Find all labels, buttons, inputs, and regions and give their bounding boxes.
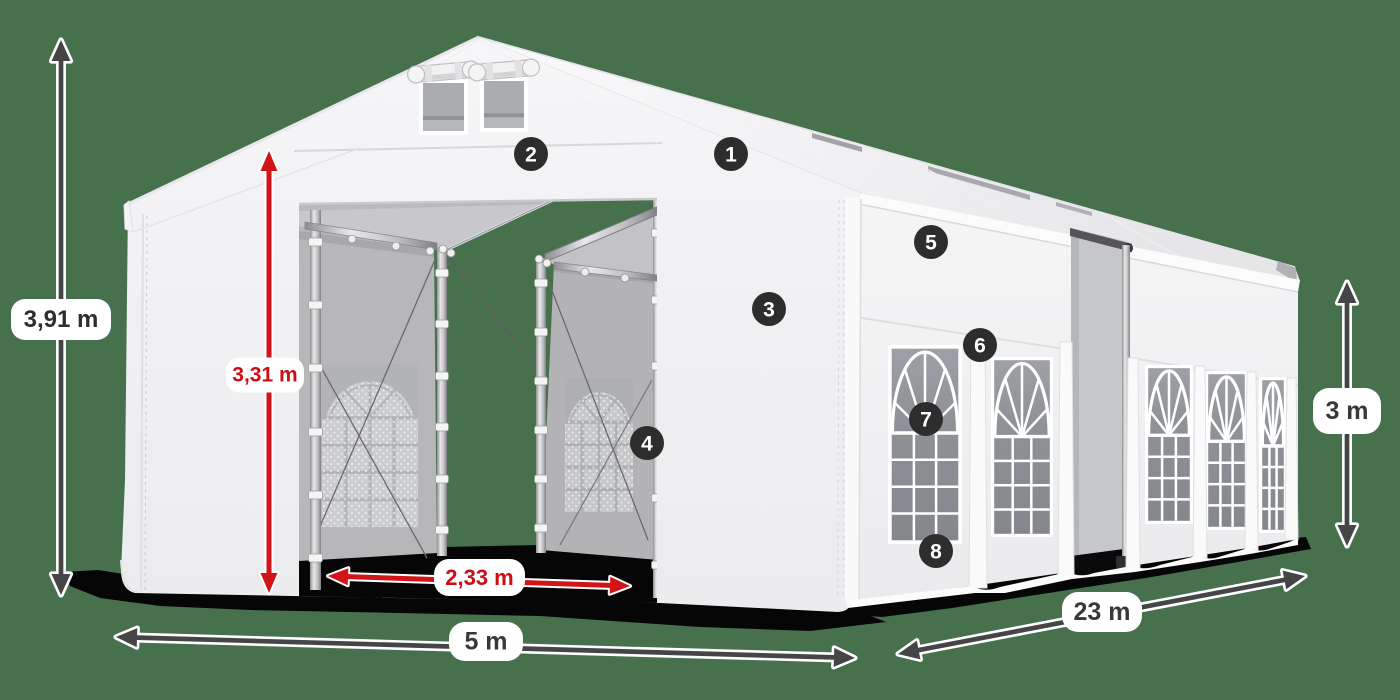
svg-text:3 m: 3 m [1325,397,1368,425]
svg-text:5: 5 [925,232,937,255]
svg-text:5 m: 5 m [464,628,507,656]
svg-text:3,91 m: 3,91 m [24,306,99,333]
svg-text:3,31 m: 3,31 m [232,364,297,387]
svg-text:8: 8 [930,541,942,564]
svg-text:23 m: 23 m [1074,598,1131,626]
svg-text:4: 4 [641,433,653,456]
svg-text:2: 2 [525,144,537,167]
svg-text:2,33 m: 2,33 m [445,565,514,590]
svg-text:3: 3 [763,299,775,322]
svg-text:6: 6 [974,335,986,358]
svg-text:1: 1 [725,144,737,167]
svg-text:7: 7 [920,409,932,432]
